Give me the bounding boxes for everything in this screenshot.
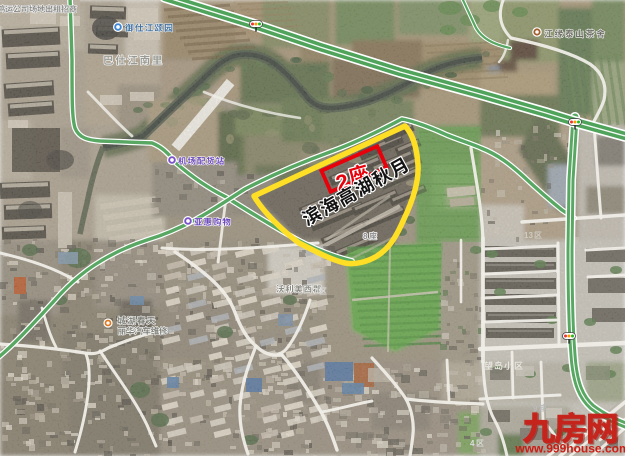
- svg-text:9: 9: [533, 404, 538, 413]
- svg-text:7: 7: [313, 287, 318, 296]
- svg-text:www.999house.com: www.999house.com: [514, 442, 625, 456]
- svg-text:4: 4: [470, 439, 475, 448]
- svg-text:8: 8: [363, 232, 368, 241]
- svg-text:13: 13: [524, 231, 533, 240]
